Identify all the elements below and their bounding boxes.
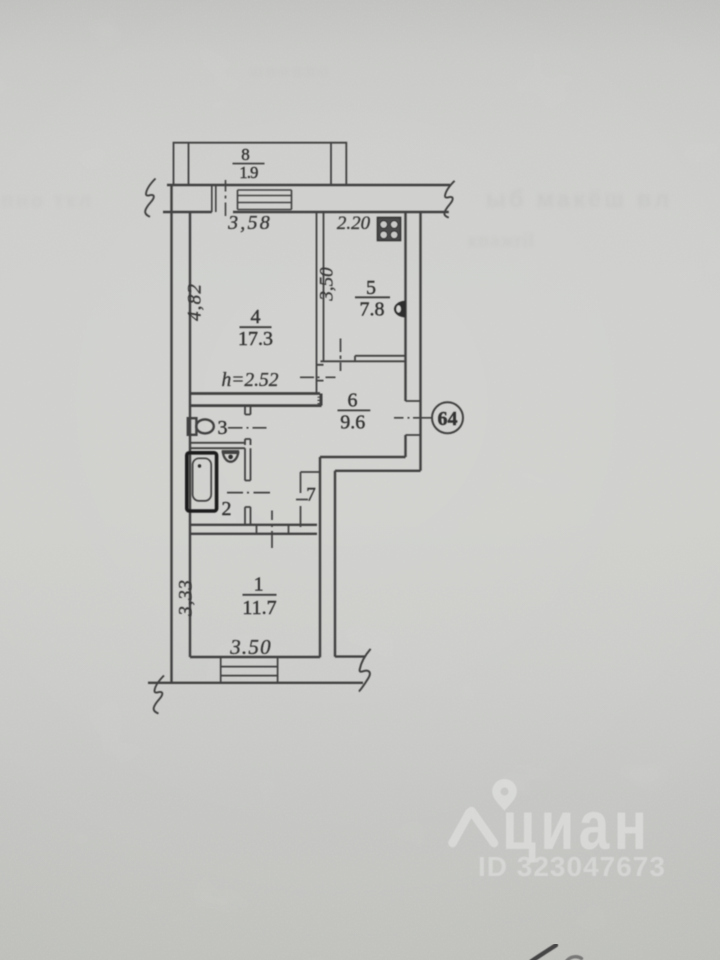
svg-text:3.50: 3.50 [229, 635, 272, 659]
svg-text:7: 7 [306, 485, 316, 506]
svg-text:7.8: 7.8 [360, 299, 385, 321]
svg-text:шоновв: шоновв [250, 63, 332, 80]
svg-text:3,58: 3,58 [227, 212, 272, 234]
svg-text:h=2.52: h=2.52 [221, 370, 278, 391]
svg-text:11.7: 11.7 [242, 597, 276, 619]
svg-text:6: 6 [348, 390, 358, 412]
svg-text:5: 5 [366, 277, 376, 299]
svg-text:3,50: 3,50 [317, 267, 338, 302]
svg-text:2.20: 2.20 [337, 213, 371, 234]
svg-text:4,82: 4,82 [185, 283, 206, 321]
svg-text:3: 3 [218, 417, 228, 439]
svg-text:ыб макёш вл: ыб макёш вл [486, 186, 673, 212]
svg-text:8: 8 [241, 145, 250, 164]
svg-text:2: 2 [222, 498, 232, 520]
svg-text:1.9: 1.9 [239, 163, 258, 182]
svg-text:17.3: 17.3 [238, 328, 273, 350]
svg-text:9.6: 9.6 [340, 412, 365, 434]
svg-text:1: 1 [254, 574, 264, 596]
svg-text:пно ткл: пно ткл [2, 191, 94, 212]
svg-text:64: 64 [438, 408, 458, 430]
svg-text:3,33: 3,33 [176, 579, 197, 616]
svg-text:кважril: кважril [468, 231, 535, 251]
svg-text:ID 323047673: ID 323047673 [478, 851, 666, 882]
svg-text:4: 4 [251, 306, 261, 328]
